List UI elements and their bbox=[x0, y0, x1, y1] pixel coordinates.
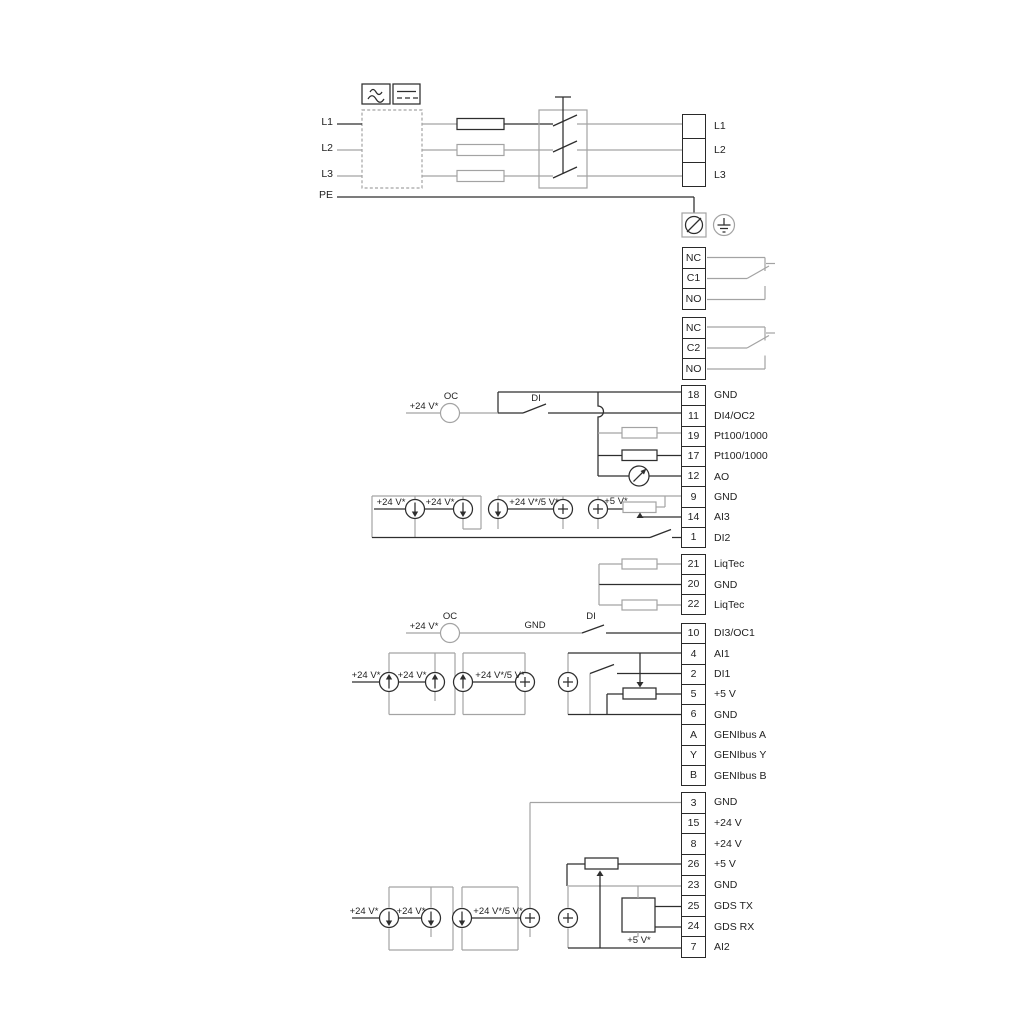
di-switch-symbol bbox=[523, 404, 546, 413]
terminal-cell: 12 bbox=[682, 466, 705, 486]
earth-ground-icon bbox=[714, 215, 735, 236]
terminal-block-io3: 3 15 8 26 23 25 24 7 bbox=[681, 792, 706, 958]
potentiometer-symbol bbox=[623, 496, 665, 518]
terminal-label: DI3/OC1 bbox=[714, 628, 755, 639]
annotation-24v-5v: +24 V*/5 V* bbox=[475, 671, 524, 681]
terminal-cell: 19 bbox=[682, 426, 705, 446]
voltage-source-icon bbox=[559, 909, 578, 928]
io2-wiring bbox=[352, 624, 681, 715]
terminal-cell: 2 bbox=[682, 664, 705, 684]
terminal-number: 10 bbox=[688, 628, 700, 639]
annotation-24v: +24 V* bbox=[398, 671, 427, 681]
terminal-label: AI3 bbox=[714, 512, 730, 523]
disconnect-switch-symbol bbox=[539, 97, 587, 188]
terminal-label: AI2 bbox=[714, 942, 730, 953]
terminal-label: +24 V bbox=[714, 818, 742, 829]
terminal-number: 17 bbox=[688, 451, 700, 462]
terminal-cell: NC bbox=[683, 248, 705, 268]
liqtec-sensor-wiring bbox=[599, 559, 681, 610]
terminal-number: 5 bbox=[691, 689, 697, 700]
annotation-oc: OC bbox=[443, 612, 457, 622]
terminal-number: C2 bbox=[687, 343, 700, 354]
terminal-cell: 23 bbox=[682, 875, 705, 896]
terminal-cell: 17 bbox=[682, 446, 705, 466]
terminal-label: GND bbox=[714, 710, 737, 721]
pe-screw-terminal-icon bbox=[682, 213, 706, 237]
open-collector-icon bbox=[441, 624, 460, 643]
terminal-number: 4 bbox=[691, 649, 697, 660]
terminal-number: 12 bbox=[688, 471, 700, 482]
relay1-contact-symbol bbox=[707, 258, 775, 300]
terminal-number: 2 bbox=[691, 669, 697, 680]
terminal-cell: 8 bbox=[682, 833, 705, 854]
terminal-number: 24 bbox=[688, 921, 700, 932]
terminal-label: GDS TX bbox=[714, 901, 753, 912]
terminal-label: GENIbus B bbox=[714, 771, 767, 782]
voltage-source-icon bbox=[521, 909, 540, 928]
terminal-block-relay2: NC C2 NO bbox=[682, 317, 706, 380]
terminal-cell bbox=[683, 115, 705, 138]
terminal-block-io2: 10 4 2 5 6 A Y B bbox=[681, 623, 706, 786]
terminal-number: B bbox=[690, 770, 697, 781]
annotation-24v: +24 V* bbox=[377, 498, 406, 508]
terminal-number: 19 bbox=[688, 431, 700, 442]
dc-symbol-icon bbox=[393, 84, 420, 104]
annotation-24v: +24 V* bbox=[410, 622, 439, 632]
terminal-cell: NO bbox=[683, 288, 705, 309]
input-label-pe: PE bbox=[305, 190, 333, 201]
terminal-cell: 9 bbox=[682, 486, 705, 506]
terminal-label: L1 bbox=[714, 121, 726, 132]
input-label-l3: L3 bbox=[305, 169, 333, 180]
terminal-cell: 14 bbox=[682, 507, 705, 527]
terminal-cell: B bbox=[682, 765, 705, 785]
terminal-number: 11 bbox=[688, 411, 699, 422]
terminal-cell: 21 bbox=[682, 555, 705, 574]
gds-sensor-box bbox=[622, 886, 681, 937]
current-source-icon bbox=[454, 500, 473, 519]
resistor-symbol bbox=[622, 450, 657, 461]
potentiometer-symbol bbox=[567, 858, 681, 886]
terminal-label: GDS RX bbox=[714, 922, 754, 933]
terminal-cell: 5 bbox=[682, 684, 705, 704]
terminal-label: LiqTec bbox=[714, 600, 744, 611]
converter-box bbox=[362, 110, 422, 188]
terminal-label: L2 bbox=[714, 145, 726, 156]
terminal-label: GND bbox=[714, 797, 737, 808]
terminal-number: A bbox=[690, 730, 697, 741]
annotation-5v: +5 V* bbox=[604, 497, 628, 507]
terminal-label: GND bbox=[714, 390, 737, 401]
annotation-24v: +24 V* bbox=[397, 907, 426, 917]
terminal-number: 21 bbox=[688, 559, 700, 570]
terminal-cell: 6 bbox=[682, 704, 705, 724]
annotation-24v-5v: +24 V*/5 V* bbox=[473, 907, 522, 917]
annotation-gnd: GND bbox=[524, 621, 545, 631]
terminal-number: 6 bbox=[691, 709, 697, 720]
terminal-block-relay1: NC C1 NO bbox=[682, 247, 706, 310]
terminal-block-io1: 18 11 19 17 12 9 14 1 bbox=[681, 385, 706, 548]
terminal-cell: NC bbox=[683, 318, 705, 338]
terminal-number: 8 bbox=[691, 839, 697, 850]
terminal-cell: 26 bbox=[682, 854, 705, 875]
terminal-cell: 15 bbox=[682, 813, 705, 834]
terminal-number: 20 bbox=[688, 579, 700, 590]
annotation-di: DI bbox=[531, 394, 541, 404]
input-label-l1: L1 bbox=[305, 117, 333, 128]
terminal-label: GND bbox=[714, 880, 737, 891]
terminal-label: Pt100/1000 bbox=[714, 431, 768, 442]
terminal-cell: 25 bbox=[682, 895, 705, 916]
terminal-label: DI1 bbox=[714, 669, 730, 680]
di-switch-symbol bbox=[590, 665, 614, 674]
current-source-icon bbox=[406, 500, 425, 519]
terminal-cell: 24 bbox=[682, 916, 705, 937]
terminal-number: 9 bbox=[691, 492, 697, 503]
annotation-24v: +24 V* bbox=[426, 498, 455, 508]
terminal-label: +24 V bbox=[714, 839, 742, 850]
terminal-label: Pt100/1000 bbox=[714, 451, 768, 462]
terminal-number: 18 bbox=[688, 390, 700, 401]
terminal-number: NO bbox=[686, 364, 702, 375]
current-source-icon bbox=[426, 673, 445, 692]
terminal-number: 25 bbox=[688, 901, 700, 912]
terminal-cell: 10 bbox=[682, 624, 705, 643]
terminal-number: C1 bbox=[687, 273, 700, 284]
analog-output-meter-icon bbox=[629, 466, 649, 486]
terminal-cell: 11 bbox=[682, 405, 705, 425]
annotation-5v: +5 V* bbox=[627, 936, 651, 946]
terminal-cell: 7 bbox=[682, 936, 705, 957]
annotation-oc: OC bbox=[444, 392, 458, 402]
current-source-icon bbox=[453, 909, 472, 928]
terminal-cell: A bbox=[682, 724, 705, 744]
terminal-label: GND bbox=[714, 492, 737, 503]
relay2-contact-symbol bbox=[707, 327, 775, 369]
terminal-label: +5 V bbox=[714, 689, 736, 700]
terminal-block-liqtec: 21 20 22 bbox=[681, 554, 706, 615]
resistor-symbol bbox=[622, 600, 657, 610]
terminal-cell bbox=[683, 162, 705, 186]
terminal-label: DI4/OC2 bbox=[714, 411, 755, 422]
io3-wiring bbox=[352, 803, 681, 951]
terminal-number: 15 bbox=[688, 818, 700, 829]
resistor-symbol bbox=[622, 559, 657, 569]
terminal-label: GENIbus A bbox=[714, 730, 766, 741]
terminal-cell: 3 bbox=[682, 793, 705, 813]
terminal-cell: 20 bbox=[682, 574, 705, 594]
di-switch-symbol bbox=[582, 625, 604, 633]
terminal-cell: NO bbox=[683, 358, 705, 379]
fuse-symbols bbox=[457, 119, 504, 182]
input-label-l2: L2 bbox=[305, 143, 333, 154]
terminal-cell bbox=[683, 138, 705, 162]
terminal-label: DI2 bbox=[714, 533, 730, 544]
di-switch-symbol bbox=[650, 530, 671, 538]
terminal-label: AI1 bbox=[714, 649, 730, 660]
terminal-cell: C1 bbox=[683, 268, 705, 289]
power-input-section bbox=[337, 84, 735, 237]
potentiometer-symbol bbox=[607, 688, 681, 715]
terminal-number: 14 bbox=[688, 512, 700, 523]
annotation-24v: +24 V* bbox=[350, 907, 379, 917]
wiring-diagram-page: NC C1 NO NC C2 NO 18 11 19 17 12 9 14 1 … bbox=[0, 0, 1024, 1024]
voltage-source-icon bbox=[559, 673, 578, 692]
open-collector-icon bbox=[441, 404, 460, 423]
terminal-number: 3 bbox=[691, 798, 697, 809]
terminal-cell: C2 bbox=[683, 338, 705, 359]
terminal-cell: 1 bbox=[682, 527, 705, 547]
terminal-number: 26 bbox=[688, 859, 700, 870]
terminal-number: NO bbox=[686, 294, 702, 305]
terminal-label: LiqTec bbox=[714, 559, 744, 570]
current-source-icon bbox=[489, 500, 508, 519]
terminal-cell: 18 bbox=[682, 386, 705, 405]
terminal-label: L3 bbox=[714, 170, 726, 181]
terminal-label: GND bbox=[714, 580, 737, 591]
terminal-cell: 22 bbox=[682, 594, 705, 614]
terminal-number: 1 bbox=[691, 532, 697, 543]
ac-symbol-icon bbox=[362, 84, 390, 104]
resistor-symbol bbox=[622, 428, 657, 439]
terminal-number: NC bbox=[686, 253, 701, 264]
terminal-cell: Y bbox=[682, 745, 705, 765]
terminal-label: GENIbus Y bbox=[714, 750, 766, 761]
current-source-icon bbox=[454, 673, 473, 692]
terminal-cell: 4 bbox=[682, 643, 705, 663]
terminal-number: Y bbox=[690, 750, 697, 761]
terminal-label: +5 V bbox=[714, 859, 736, 870]
current-source-icon bbox=[380, 673, 399, 692]
io1-wiring bbox=[372, 392, 681, 538]
annotation-24v-5v: +24 V*/5 V* bbox=[509, 498, 558, 508]
annotation-di: DI bbox=[586, 612, 596, 622]
annotation-24v: +24 V* bbox=[352, 671, 381, 681]
terminal-number: NC bbox=[686, 323, 701, 334]
terminal-label: AO bbox=[714, 472, 729, 483]
terminal-number: 23 bbox=[688, 880, 700, 891]
terminal-number: 22 bbox=[688, 599, 700, 610]
terminal-number: 7 bbox=[691, 942, 697, 953]
schematic-canvas bbox=[0, 0, 1024, 1024]
terminal-block-power bbox=[682, 114, 706, 187]
annotation-24v: +24 V* bbox=[410, 402, 439, 412]
